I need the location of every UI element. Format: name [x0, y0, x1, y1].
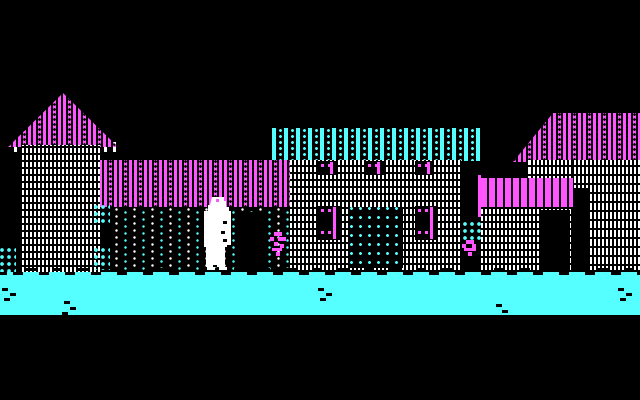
shop-roof	[94, 160, 290, 207]
window-dots	[321, 209, 324, 212]
inn-window-upper-1[interactable]	[318, 161, 337, 175]
inn-screen-door[interactable]	[350, 207, 403, 268]
window-dots	[418, 209, 421, 212]
window-shutter	[427, 162, 430, 174]
right-house-doorway[interactable]	[572, 188, 590, 270]
inn-awning	[272, 128, 480, 161]
window-shutter	[377, 162, 380, 174]
sky	[0, 0, 640, 93]
street[interactable]	[0, 272, 640, 315]
tower-wall	[22, 145, 100, 272]
inn-window-upper-2[interactable]	[365, 161, 384, 175]
street-edge-dashes	[0, 272, 640, 275]
inn-window-lower-left[interactable]	[318, 206, 340, 240]
right-house-gable-wall	[528, 160, 573, 180]
right-house-roof	[513, 113, 640, 162]
tower-roof	[8, 93, 118, 147]
street-pebbles	[64, 301, 70, 304]
sign-pole	[478, 175, 481, 217]
bush	[94, 248, 110, 270]
street-pebbles	[2, 288, 8, 291]
window-shutter	[330, 162, 333, 174]
right-wing-doorway[interactable]	[540, 210, 570, 270]
window-dots	[368, 164, 371, 167]
window-dots	[321, 164, 324, 167]
street-pebbles	[318, 288, 324, 291]
villager-sprite	[203, 197, 233, 270]
window-shutter	[333, 207, 336, 239]
game-scene[interactable]	[0, 0, 640, 400]
flower-left[interactable]	[270, 232, 274, 236]
street-pebbles	[618, 288, 624, 291]
inn-window-lower-right[interactable]	[415, 206, 437, 240]
flower-right[interactable]	[462, 240, 466, 244]
street-pebbles	[496, 304, 502, 307]
shop-doorway[interactable]	[238, 212, 265, 270]
window-shutter	[430, 207, 433, 239]
bush	[0, 248, 16, 272]
bush	[94, 205, 110, 225]
inn-window-upper-3[interactable]	[415, 161, 434, 175]
villager[interactable]	[203, 197, 233, 270]
right-house-awning	[481, 178, 573, 207]
bush	[463, 222, 481, 242]
window-dots	[418, 164, 421, 167]
